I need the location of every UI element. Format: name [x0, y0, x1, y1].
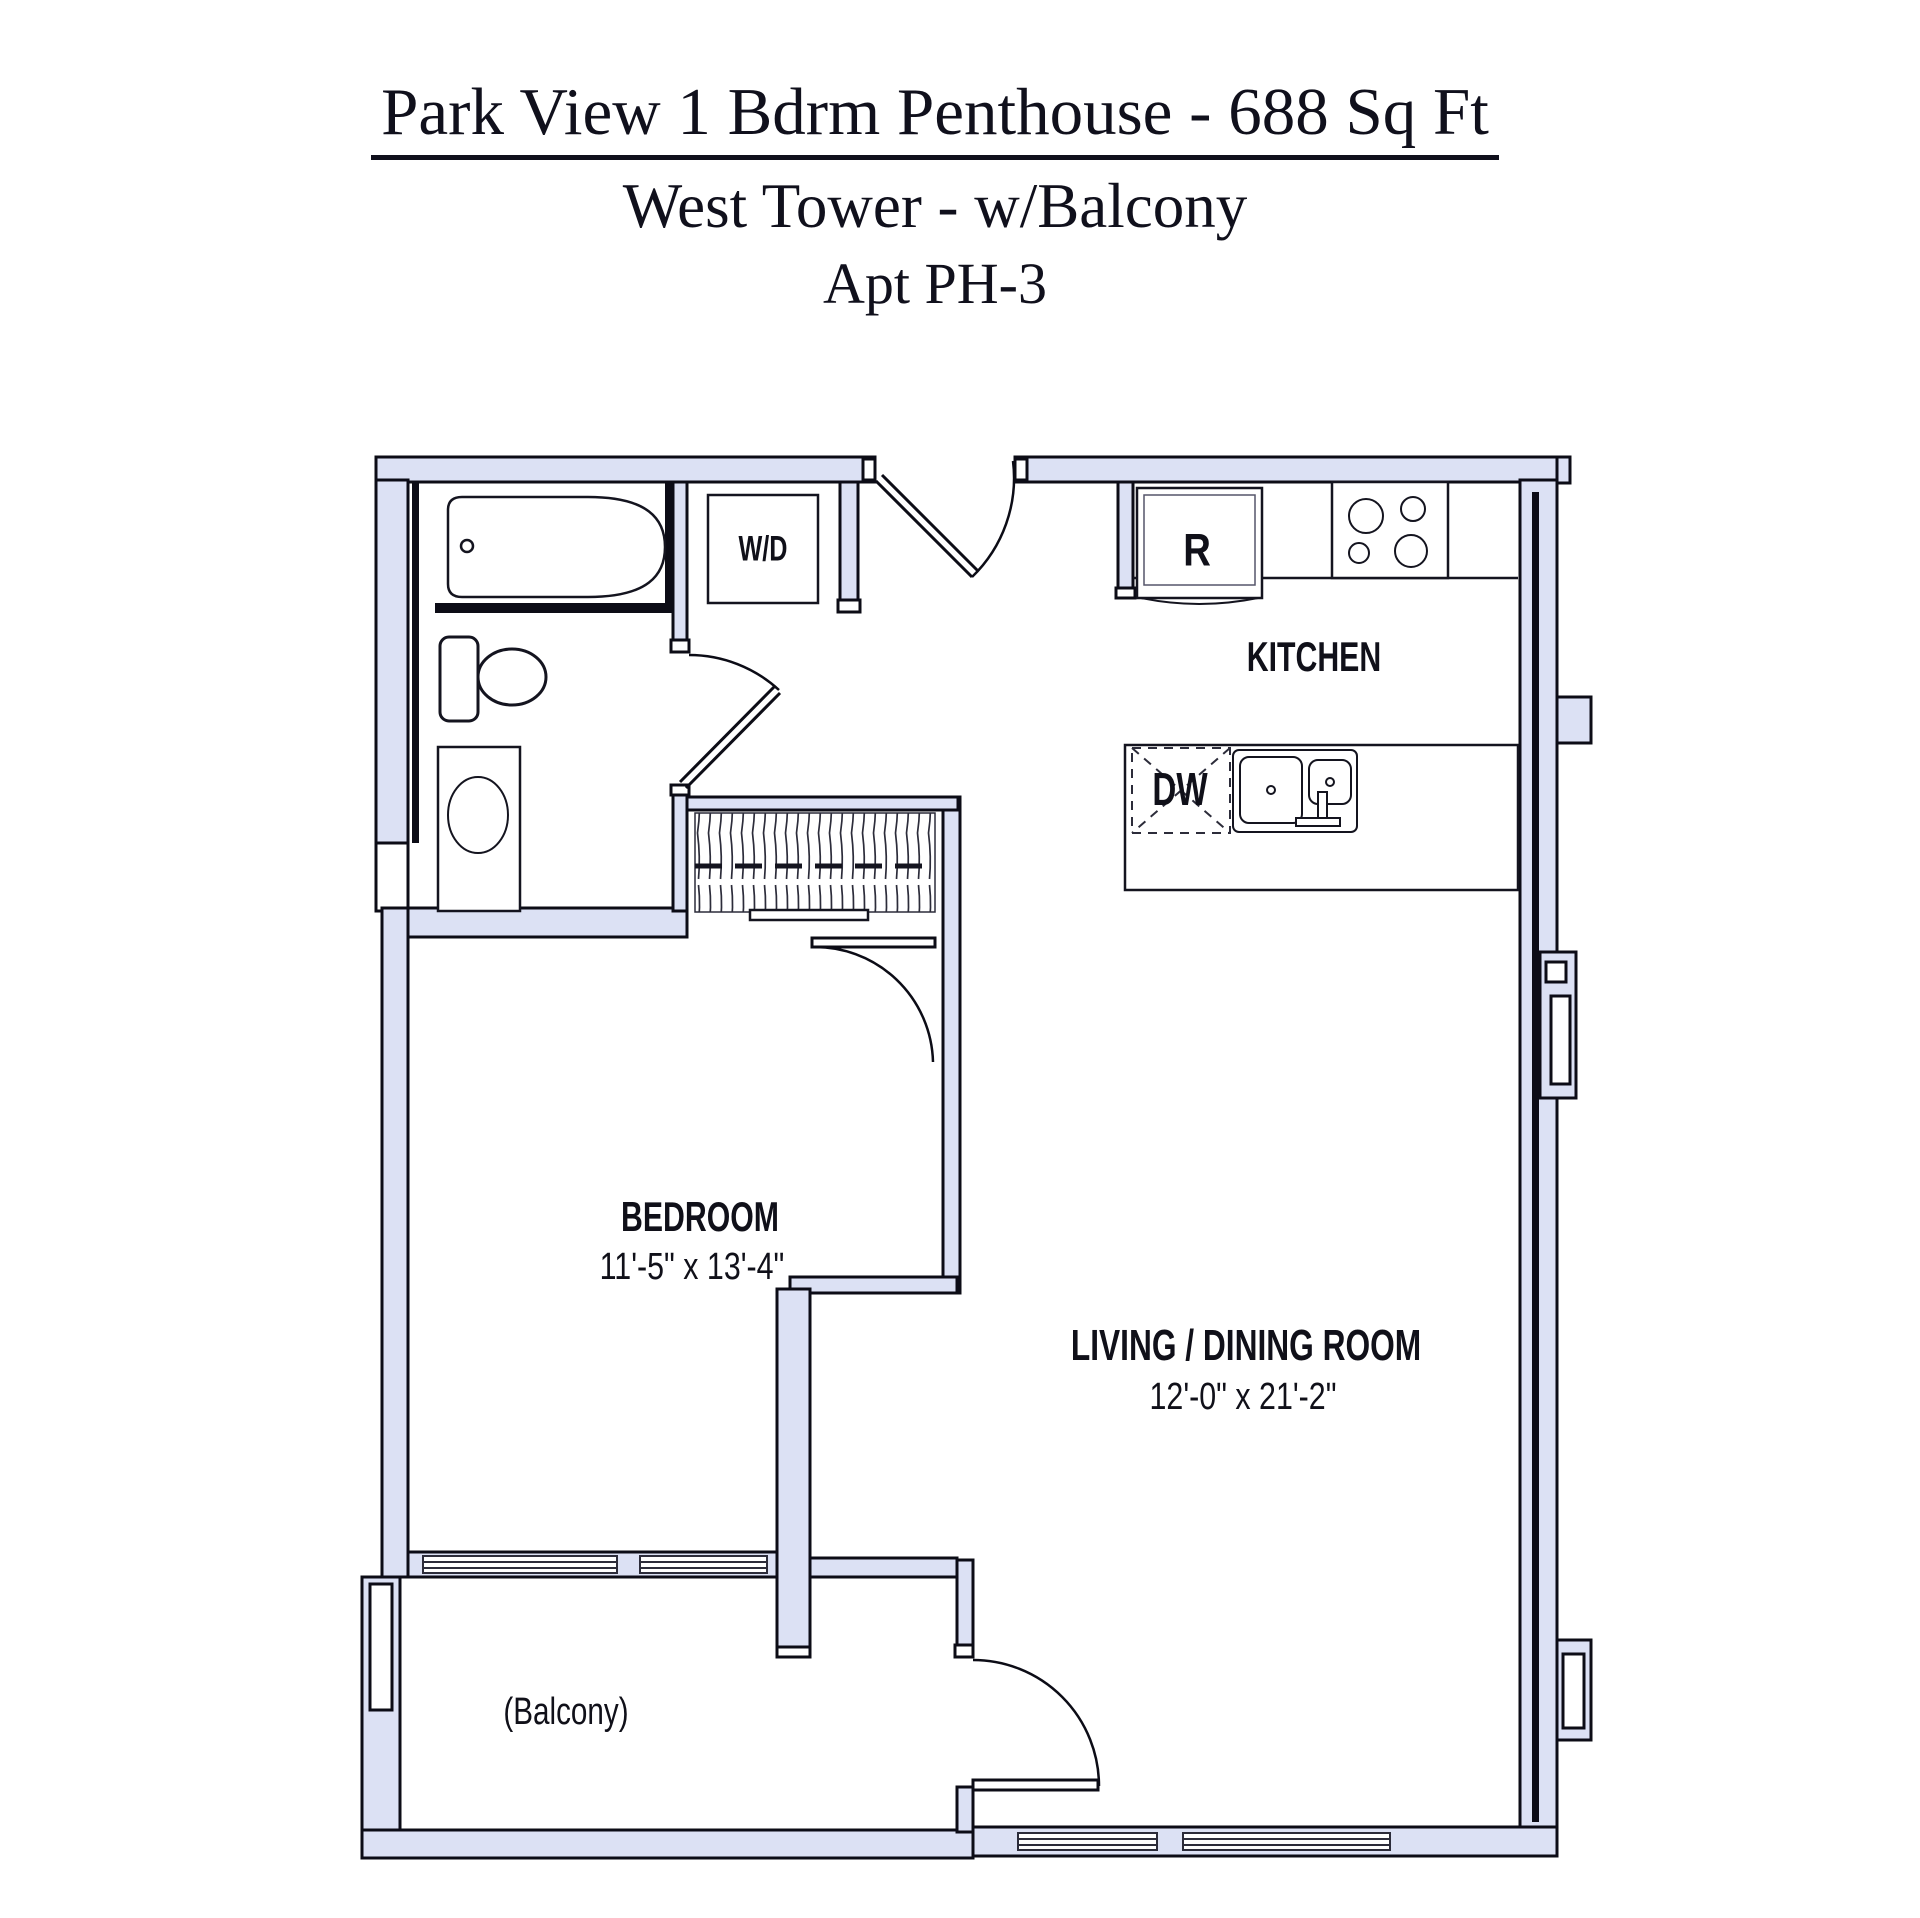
balcony-door	[973, 1660, 1099, 1790]
right-wall-pier-slot	[1551, 996, 1570, 1084]
bedroom-label: BEDROOM	[621, 1196, 779, 1238]
left-wall-window	[376, 843, 408, 911]
bedroom-closet	[695, 813, 935, 920]
entry-door	[876, 461, 1014, 577]
balcony-bottom-wall	[362, 1830, 973, 1858]
dishwasher-label: DW	[1152, 766, 1207, 812]
top-wall-right	[1015, 457, 1570, 482]
doors	[680, 461, 1099, 1790]
balcony-wall-cap	[955, 1645, 973, 1657]
right-wall-bump-1	[1557, 697, 1591, 743]
balcony-living-wall-lower	[957, 1787, 973, 1832]
bedroom-living-wall-upper	[943, 797, 960, 1293]
living-window-1	[1018, 1833, 1157, 1850]
right-wall-bump-2-slot	[1563, 1654, 1584, 1728]
toilet	[440, 637, 546, 721]
living-room-label: LIVING / DINING ROOM	[1071, 1324, 1421, 1368]
balcony-label: (Balcony)	[503, 1693, 628, 1731]
entry-right-cap	[1015, 459, 1027, 480]
washer-dryer-label: W/D	[739, 532, 788, 567]
right-wall-glass-line	[1532, 492, 1539, 1822]
interior-thick-lines	[412, 482, 1539, 1822]
wd-pillar-cap	[838, 600, 860, 612]
bedroom-window-1	[423, 1556, 617, 1573]
living-south-small-wall	[810, 1558, 957, 1577]
wall-caps	[671, 459, 1135, 1657]
bathroom-fixtures	[438, 497, 665, 911]
floor-plan-drawing	[0, 0, 1920, 1918]
entry-left-cap	[863, 459, 875, 480]
left-wall-upper	[376, 480, 408, 843]
kitchen-sink	[1233, 750, 1357, 832]
stove	[1332, 482, 1448, 578]
right-wall-pier-box	[1546, 962, 1566, 982]
bedroom-door	[812, 938, 935, 1062]
living-room-dims: 12'-0" x 21'-2"	[1150, 1378, 1337, 1416]
balcony-left-opening	[370, 1584, 392, 1710]
bathtub-drain	[461, 540, 473, 552]
walls	[362, 457, 1591, 1858]
bath-door-top-cap	[671, 640, 689, 652]
vanity-sink	[438, 747, 520, 911]
closet-hanging-area	[695, 813, 935, 912]
wd-closet-left-pillar	[673, 482, 687, 640]
bathtub	[448, 497, 665, 597]
closet-sliding-door	[750, 910, 868, 920]
kitchen-stub-cap	[1116, 588, 1135, 598]
closet-top-wall	[687, 797, 958, 810]
stub-bottom-cap	[777, 1647, 810, 1657]
wd-closet-right-pillar	[840, 482, 858, 600]
kitchen-label: KITCHEN	[1247, 636, 1381, 678]
bedroom-dims: 11'-5" x 13'-4"	[600, 1248, 785, 1286]
tub-enclosure-line	[435, 603, 672, 613]
floor-plan-page: Park View 1 Bdrm Penthouse - 688 Sq Ft W…	[0, 0, 1920, 1918]
right-wall-corner-step	[1557, 457, 1570, 483]
refrigerator-label: R	[1183, 528, 1211, 573]
bedroom-window-2	[640, 1556, 767, 1573]
left-wall-bedroom	[382, 908, 408, 1577]
wall-jog	[790, 1277, 957, 1293]
bedroom-living-wall-lower	[777, 1289, 810, 1657]
top-wall-left	[376, 457, 875, 482]
living-window-2	[1183, 1833, 1390, 1850]
kitchen-entry-stub	[1118, 482, 1133, 590]
bathroom-west-line	[412, 483, 419, 843]
bathroom-door	[680, 655, 780, 788]
bathroom-door-lower-wall	[673, 793, 687, 911]
balcony-living-wall-upper	[957, 1560, 973, 1655]
bathroom-south-wall	[408, 908, 687, 937]
